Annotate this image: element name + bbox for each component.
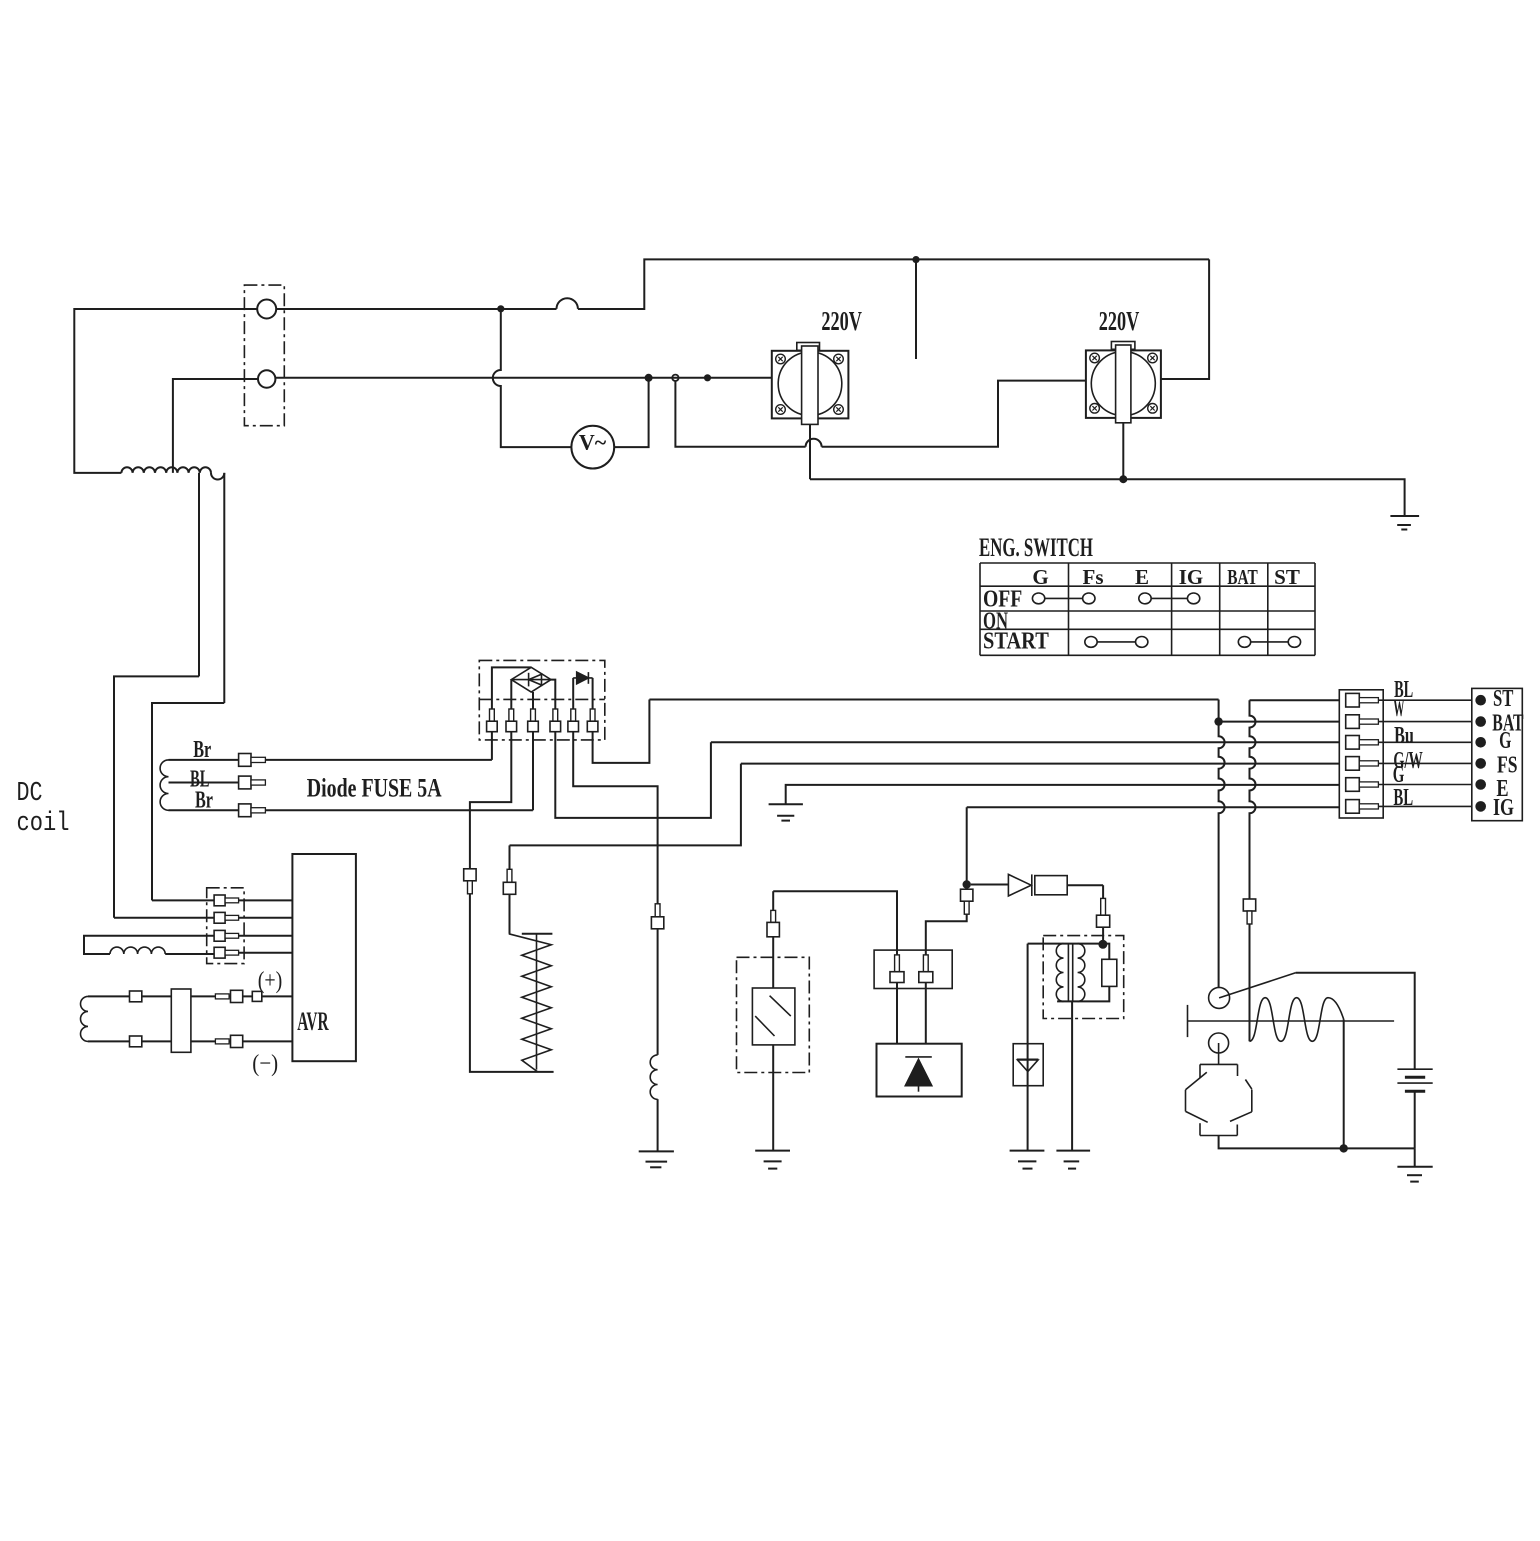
- svg-text:220V: 220V: [1099, 306, 1140, 336]
- svg-text:V~: V~: [579, 430, 607, 455]
- svg-text:Br: Br: [195, 788, 213, 814]
- svg-text:220V: 220V: [821, 306, 862, 336]
- svg-text:IG: IG: [1179, 565, 1204, 589]
- svg-text:ST: ST: [1493, 686, 1513, 712]
- svg-text:G: G: [1032, 565, 1048, 589]
- svg-text:W: W: [1393, 696, 1404, 722]
- svg-text:Br: Br: [193, 737, 211, 763]
- svg-text:BAT: BAT: [1227, 565, 1257, 589]
- svg-text:Bu: Bu: [1394, 723, 1414, 749]
- svg-text:START: START: [983, 629, 1049, 655]
- svg-text:ENG. SWITCH: ENG. SWITCH: [979, 533, 1093, 562]
- svg-text:FS: FS: [1497, 753, 1518, 779]
- svg-text:(−): (−): [252, 1051, 278, 1077]
- svg-text:(+): (+): [258, 968, 283, 994]
- svg-text:IG: IG: [1493, 795, 1514, 821]
- svg-text:Fs: Fs: [1083, 565, 1104, 589]
- svg-text:E: E: [1135, 565, 1149, 589]
- svg-text:DC: DC: [17, 779, 43, 809]
- svg-text:Diode FUSE 5A: Diode FUSE 5A: [307, 774, 442, 803]
- svg-text:ST: ST: [1274, 565, 1300, 589]
- svg-text:AVR: AVR: [297, 1007, 328, 1036]
- svg-text:coil: coil: [17, 809, 70, 839]
- svg-text:G: G: [1499, 728, 1512, 754]
- svg-text:BL: BL: [1393, 785, 1413, 811]
